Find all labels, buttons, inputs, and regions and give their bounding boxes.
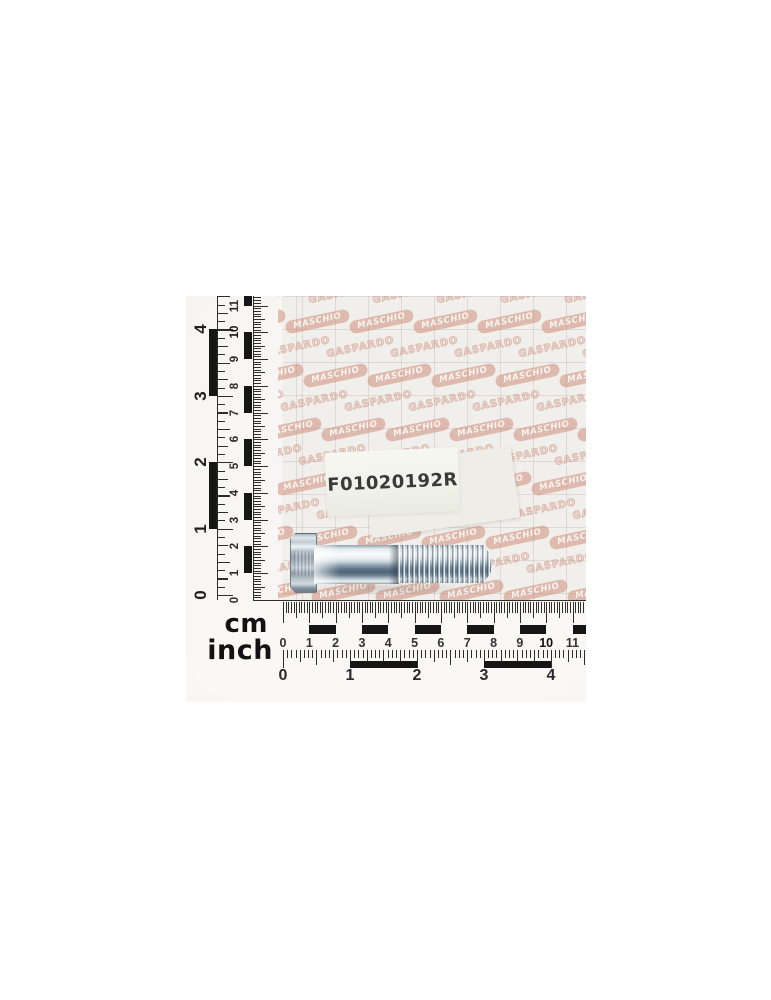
ruler-tick	[463, 650, 464, 658]
ruler-tick	[378, 602, 379, 614]
ruler-tick	[254, 576, 261, 577]
ruler-tick	[254, 458, 261, 459]
ruler-tick	[467, 650, 468, 662]
ruler-tick	[580, 650, 581, 658]
ruler-tick	[509, 602, 510, 614]
ruler-tick	[254, 485, 261, 486]
ruler-tick	[254, 581, 261, 582]
ruler-tick	[530, 650, 531, 658]
ruler-tick	[218, 429, 230, 430]
ruler-tick	[218, 313, 228, 314]
ruler-tick	[254, 472, 261, 473]
ruler-tick	[394, 602, 395, 614]
ruler-tick	[446, 602, 447, 614]
ruler-tick	[254, 300, 261, 301]
ruler-tick	[412, 602, 413, 614]
ruler-tick	[218, 338, 225, 339]
ruler-tick	[359, 602, 360, 614]
ruler-tick	[362, 602, 363, 623]
watermark-maschio-badge: MASCHIO	[494, 362, 560, 388]
ruler-tick	[365, 602, 366, 614]
ruler-tick	[288, 602, 289, 614]
ruler-tick	[526, 650, 527, 658]
ruler-tick	[218, 321, 225, 322]
ruler-tick	[254, 506, 265, 507]
ruler-tick	[254, 322, 261, 323]
ruler-tick	[422, 602, 423, 614]
ruler-block	[209, 462, 217, 528]
watermark-gaspardo: GASPARDO	[278, 335, 331, 360]
ruler-tick	[425, 650, 426, 658]
watermark-gaspardo: GASPARDO	[372, 296, 442, 306]
watermark-gaspardo: GASPARDO	[500, 296, 570, 306]
watermark-maschio-badge: MASCHIO	[278, 308, 287, 334]
ruler-tick	[554, 602, 555, 614]
ruler-tick	[357, 602, 358, 614]
ruler-tick	[254, 520, 268, 521]
ruler-tick	[442, 650, 443, 658]
ruler-tick	[433, 602, 434, 614]
ruler-number-cm: 1	[306, 636, 313, 650]
ruler-tick	[538, 650, 539, 658]
ruler-tick	[254, 455, 261, 456]
ruler-tick	[533, 602, 534, 618]
ruler-tick	[254, 573, 268, 574]
watermark-gaspardo: GASPARDO	[518, 335, 586, 360]
ruler-tick	[254, 461, 261, 462]
ruler-tick	[496, 602, 497, 614]
ruler-tick	[254, 311, 261, 312]
ruler-tick	[296, 602, 297, 618]
ruler-tick	[254, 378, 261, 379]
ruler-tick	[491, 602, 492, 614]
ruler-tick	[404, 602, 405, 614]
watermark-maschio-badge: MASCHIO	[476, 308, 542, 334]
ruler-tick	[568, 650, 569, 662]
ruler-tick	[254, 554, 261, 555]
ruler-number-cm: 9	[229, 356, 241, 362]
ruler-tick	[254, 437, 261, 438]
ruler-tick	[254, 389, 261, 390]
watermark-maschio-badge: MASCHIO	[366, 362, 432, 388]
ruler-tick	[392, 650, 393, 658]
ruler-tick	[254, 407, 261, 408]
ruler-tick	[254, 563, 261, 564]
ruler-tick	[344, 602, 345, 614]
ruler-tick	[478, 602, 479, 614]
ruler-tick	[551, 650, 552, 668]
watermark-maschio-badge: MASCHIO	[412, 308, 478, 334]
ruler-tick	[254, 493, 268, 494]
ruler-tick	[333, 602, 334, 614]
ruler-tick	[454, 602, 455, 618]
watermark-maschio-badge: MASCHIO	[576, 416, 586, 442]
cm-unit-label: cm	[202, 611, 268, 637]
ruler-tick	[218, 305, 225, 306]
ruler-tick	[287, 650, 288, 658]
ruler-tick	[291, 602, 292, 614]
ruler-tick	[436, 602, 437, 614]
ruler-tick	[351, 602, 352, 614]
ruler-tick	[457, 602, 458, 614]
watermark-maschio-badge: MASCHIO	[566, 578, 586, 600]
ruler-tick	[254, 544, 261, 545]
ruler-tick	[254, 359, 268, 360]
ruler-block	[244, 332, 252, 359]
bolt-threads	[397, 545, 491, 583]
ruler-tick	[254, 536, 261, 537]
ruler-tick	[254, 549, 261, 550]
ruler-tick	[218, 296, 230, 297]
part-number-text: F01020192R	[327, 469, 458, 496]
watermark-maschio-badge: MASCHIO	[278, 362, 305, 388]
watermark-maschio-badge: MASCHIO	[448, 416, 514, 442]
ruler-tick	[299, 602, 300, 614]
watermark-gaspardo: GASPARDO	[344, 389, 414, 414]
ruler-tick	[296, 650, 297, 658]
ruler-tick	[555, 650, 556, 658]
ruler-number-inch: 3	[479, 667, 488, 685]
watermark-gaspardo: GASPARDO	[554, 443, 586, 468]
ruler-tick	[399, 602, 400, 614]
ruler-number-cm: 6	[229, 436, 241, 442]
ruler-tick	[505, 650, 506, 658]
part-number-label: F01020192R	[325, 447, 461, 517]
ruler-number-cm: 9	[516, 636, 523, 650]
ruler-tick	[254, 421, 261, 422]
ruler-tick	[494, 602, 495, 623]
ruler-tick	[254, 571, 261, 572]
ruler-tick	[325, 650, 326, 658]
ruler-tick	[218, 570, 225, 571]
ruler-tick	[218, 504, 225, 505]
ruler-tick	[559, 602, 560, 618]
ruler-number-cm: 8	[490, 636, 497, 650]
ruler-block	[244, 439, 252, 466]
ruler-tick	[254, 391, 261, 392]
ruler-tick	[218, 454, 225, 455]
ruler-tick	[254, 370, 261, 371]
ruler-tick	[320, 602, 321, 614]
watermark-maschio-badge: MASCHIO	[512, 416, 578, 442]
watermark-maschio-badge: MASCHIO	[302, 362, 368, 388]
ruler-tick	[473, 602, 474, 614]
ruler-tick	[254, 447, 261, 448]
ruler-tick	[254, 351, 261, 352]
ruler-tick	[254, 595, 261, 596]
ruler-tick	[254, 332, 268, 333]
watermark-gaspardo: GASPARDO	[390, 335, 460, 360]
ruler-tick	[363, 650, 364, 658]
watermark-gaspardo: GASPARDO	[280, 389, 350, 414]
ruler-tick	[254, 557, 261, 558]
watermark-gaspardo: GASPARDO	[472, 389, 542, 414]
ruler-tick	[254, 372, 265, 373]
ruler-tick	[218, 545, 228, 546]
ruler-number-inch: 0	[191, 590, 211, 599]
watermark-gaspardo: GASPARDO	[408, 389, 478, 414]
ruler-number-cm: 6	[437, 636, 444, 650]
ruler-tick	[254, 474, 261, 475]
ruler-tick	[499, 602, 500, 614]
ruler-tick	[570, 602, 571, 614]
ruler-tick	[312, 602, 313, 614]
ruler-number-cm: 10	[539, 636, 553, 650]
ruler-tick	[254, 340, 261, 341]
ruler-tick	[254, 399, 265, 400]
ruler-tick	[304, 602, 305, 614]
ruler-tick	[354, 650, 355, 658]
ruler-tick	[254, 597, 261, 598]
ruler-tick	[218, 363, 230, 364]
ruler-tick	[559, 650, 560, 658]
ruler-tick	[218, 446, 228, 447]
ruler-tick	[254, 565, 261, 566]
ruler-tick	[254, 453, 265, 454]
ruler-tick	[254, 431, 261, 432]
product-photo: GASPARDOGASPARDOGASPARDOGASPARDOGASPARDO…	[186, 296, 586, 702]
ruler-block	[244, 296, 252, 306]
ruler-tick	[254, 560, 265, 561]
ruler-tick	[218, 421, 225, 422]
ruler-tick	[333, 650, 334, 662]
ruler-tick	[446, 650, 447, 658]
ruler-number-cm: 5	[229, 463, 241, 469]
ruler-tick	[404, 650, 405, 658]
ruler-tick	[575, 602, 576, 614]
watermark-gaspardo: GASPARDO	[536, 389, 586, 414]
ruler-tick	[254, 375, 261, 376]
ruler-tick	[254, 579, 261, 580]
ruler-tick	[218, 471, 225, 472]
watermark-gaspardo: GASPARDO	[564, 296, 586, 306]
ruler-tick	[254, 405, 261, 406]
ruler-tick	[218, 554, 225, 555]
ruler-tick	[409, 602, 410, 614]
ruler-block	[209, 329, 217, 395]
ruler-tick	[254, 504, 261, 505]
ruler-tick	[496, 650, 497, 658]
ruler-tick	[254, 356, 261, 357]
ruler-tick	[549, 602, 550, 614]
ruler-tick	[338, 602, 339, 614]
ruler-tick	[413, 650, 414, 658]
ruler-tick	[218, 537, 225, 538]
ruler-tick	[254, 525, 261, 526]
ruler-tick	[254, 450, 261, 451]
ruler-tick	[254, 439, 268, 440]
ruler-tick	[330, 602, 331, 614]
ruler-tick	[407, 602, 408, 614]
ruler-tick	[580, 602, 581, 614]
watermark-maschio-badge: MASCHIO	[384, 416, 450, 442]
ruler-tick	[321, 650, 322, 658]
ruler-tick	[254, 324, 261, 325]
ruler-tick	[425, 602, 426, 614]
ruler-tick	[316, 650, 317, 665]
ruler-tick	[551, 602, 552, 614]
ruler-tick	[254, 477, 261, 478]
ruler-tick	[471, 650, 472, 658]
ruler-number-inch: 0	[279, 667, 288, 685]
ruler-tick	[346, 602, 347, 614]
ruler-tick	[218, 346, 228, 347]
ruler-number-cm: 5	[411, 636, 418, 650]
ruler-number-cm: 0	[229, 597, 241, 603]
ruler-tick	[254, 418, 261, 419]
ruler-tick	[543, 650, 544, 658]
ruler-number-cm: 11	[566, 636, 579, 650]
ruler-tick	[254, 463, 261, 464]
ruler-tick	[372, 602, 373, 614]
ruler-tick	[578, 602, 579, 614]
ruler-tick	[218, 404, 225, 405]
ruler-tick	[337, 650, 338, 658]
ruler-tick	[409, 650, 410, 658]
ruler-tick	[462, 602, 463, 614]
ruler-tick	[254, 397, 261, 398]
ruler-tick	[218, 562, 230, 563]
ruler-tick	[254, 383, 261, 384]
ruler-tick	[444, 602, 445, 614]
ruler-tick	[467, 602, 468, 623]
ruler-tick	[455, 650, 456, 658]
ruler-number-cm: 10	[229, 326, 241, 339]
ruler-tick	[254, 584, 261, 585]
ruler-tick	[254, 308, 261, 309]
ruler-tick	[492, 650, 493, 658]
ruler-tick	[380, 602, 381, 614]
ruler-tick	[218, 520, 225, 521]
ruler-tick	[512, 602, 513, 614]
ruler-tick	[513, 650, 514, 658]
ruler-tick	[254, 589, 261, 590]
ruler-tick	[254, 568, 261, 569]
ruler-tick	[254, 445, 261, 446]
ruler-tick	[371, 650, 372, 658]
ruler-tick	[254, 552, 261, 553]
ruler-tick	[286, 602, 287, 614]
ruler-tick	[291, 650, 292, 658]
ruler-tick	[254, 348, 261, 349]
ruler-tick	[254, 509, 261, 510]
ruler-tick	[475, 602, 476, 614]
ruler-block	[520, 625, 546, 634]
watermark-maschio-badge: MASCHIO	[502, 578, 568, 600]
ruler-tick	[283, 602, 284, 623]
ruler-tick	[254, 517, 261, 518]
ruler-tick	[254, 413, 268, 414]
ruler-tick	[254, 528, 261, 529]
ruler-tick	[523, 602, 524, 614]
ruler-tick	[459, 602, 460, 614]
ruler-tick	[396, 602, 397, 614]
watermark-gaspardo: GASPARDO	[308, 296, 378, 306]
ruler-tick	[301, 602, 302, 614]
ruler-tick	[254, 482, 261, 483]
ruler-tick	[573, 602, 574, 623]
ruler-block	[484, 661, 551, 669]
ruler-tick	[322, 602, 323, 618]
ruler-tick	[218, 388, 225, 389]
ruler-tick	[342, 650, 343, 658]
ruler-tick	[304, 650, 305, 658]
ruler-tick	[254, 426, 265, 427]
ruler-tick	[507, 602, 508, 618]
ruler-tick	[254, 480, 265, 481]
ruler-margin-left	[186, 296, 282, 600]
watermark-maschio-badge: MASCHIO	[530, 470, 586, 496]
ruler-tick	[307, 602, 308, 614]
watermark-gaspardo: GASPARDO	[436, 296, 506, 306]
ruler-tick	[254, 466, 268, 467]
ruler-tick	[562, 602, 563, 614]
ruler-tick	[254, 541, 261, 542]
ruler-tick	[486, 602, 487, 614]
ruler-number-cm: 3	[229, 516, 241, 522]
ruler-tick	[218, 529, 233, 530]
ruler-tick	[218, 437, 225, 438]
ruler-tick	[328, 602, 329, 614]
ruler-tick	[354, 602, 355, 614]
ruler-tick	[546, 602, 547, 623]
page: GASPARDOGASPARDOGASPARDOGASPARDOGASPARDO…	[0, 0, 771, 1000]
ruler-tick	[254, 530, 261, 531]
watermark-maschio-badge: MASCHIO	[540, 308, 586, 334]
ruler-tick	[254, 394, 261, 395]
ruler-block	[309, 625, 335, 634]
ruler-tick	[254, 490, 261, 491]
ruler-tick	[375, 650, 376, 658]
ruler-tick	[254, 533, 265, 534]
watermark-gaspardo: GASPARDO	[278, 497, 321, 522]
ruler-tick	[396, 650, 397, 658]
ruler-tick	[254, 469, 261, 470]
ruler-tick	[254, 330, 261, 331]
watermark-gaspardo: GASPARDO	[526, 551, 586, 576]
ruler-tick	[254, 501, 261, 502]
ruler-number-cm: 4	[385, 636, 392, 650]
watermark-maschio-badge: MASCHIO	[430, 362, 496, 388]
ruler-number-cm: 2	[332, 636, 339, 650]
ruler-tick	[254, 546, 268, 547]
bolt-shank	[314, 545, 398, 584]
bolt-shadow	[292, 583, 488, 594]
ruler-tick	[391, 602, 392, 614]
ruler-tick	[254, 592, 261, 593]
ruler-tick	[254, 327, 261, 328]
ruler-tick	[254, 306, 268, 307]
ruler-tick	[438, 650, 439, 658]
ruler-block	[362, 625, 388, 634]
ruler-block	[350, 661, 417, 669]
ruler-tick	[420, 602, 421, 614]
ruler-tick	[520, 602, 521, 623]
ruler-tick	[401, 602, 402, 618]
ruler-tick	[254, 587, 265, 588]
ruler-tick	[358, 650, 359, 658]
ruler-tick	[294, 602, 295, 614]
ruler-tick	[538, 602, 539, 614]
ruler-tick	[312, 650, 313, 658]
ruler-tick	[315, 602, 316, 614]
ruler-tick	[254, 410, 261, 411]
ruler-tick	[254, 434, 261, 435]
ruler-tick	[309, 602, 310, 623]
ruler-tick	[515, 602, 516, 614]
watermark-maschio-badge: MASCHIO	[278, 416, 323, 442]
ruler-block	[467, 625, 493, 634]
